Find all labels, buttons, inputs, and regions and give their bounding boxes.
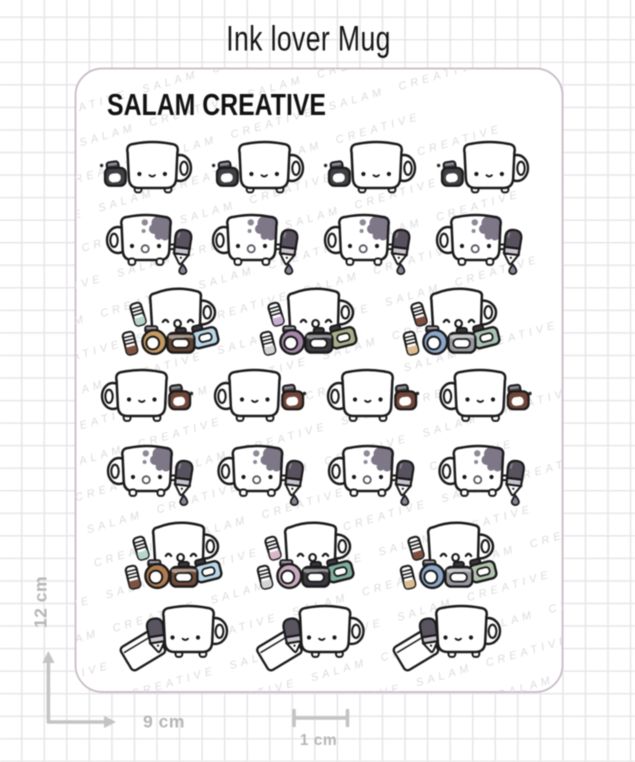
svg-text:9 cm: 9 cm <box>143 712 185 732</box>
svg-text:12 cm: 12 cm <box>31 576 51 628</box>
svg-text:1 cm: 1 cm <box>300 732 337 749</box>
svg-text:SALAM CREATIVE: SALAM CREATIVE <box>107 87 326 122</box>
svg-text:Ink lover Mug: Ink lover Mug <box>226 19 391 58</box>
